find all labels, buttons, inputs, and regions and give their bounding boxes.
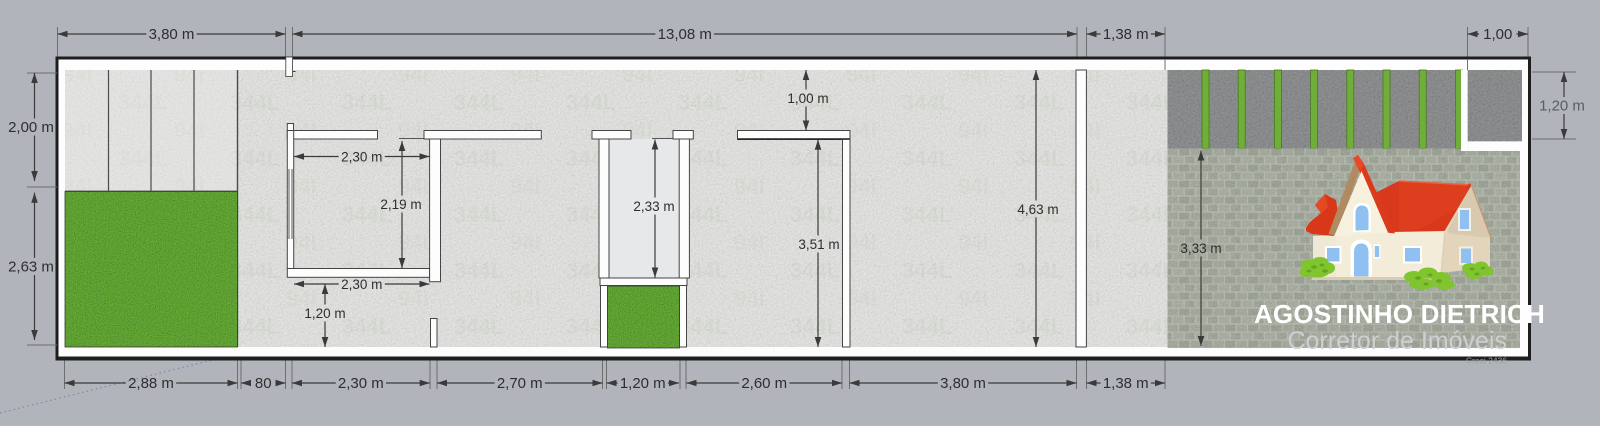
svg-text:1,20 m: 1,20 m	[620, 375, 666, 392]
svg-text:13,08 m: 13,08 m	[658, 26, 712, 43]
svg-text:3,51 m: 3,51 m	[798, 237, 839, 252]
svg-text:3,80 m: 3,80 m	[149, 26, 195, 43]
svg-text:2,70 m: 2,70 m	[497, 375, 543, 392]
svg-text:1,00 m: 1,00 m	[787, 91, 828, 106]
svg-text:1,00: 1,00	[1483, 26, 1512, 43]
svg-text:4,63 m: 4,63 m	[1017, 202, 1058, 217]
svg-text:3,80 m: 3,80 m	[940, 375, 986, 392]
svg-text:2,63 m: 2,63 m	[8, 258, 54, 275]
svg-text:2,30 m: 2,30 m	[338, 375, 384, 392]
svg-text:2,60 m: 2,60 m	[741, 375, 787, 392]
svg-text:2,30 m: 2,30 m	[341, 277, 382, 292]
svg-text:AGOSTINHO DIETRICH: AGOSTINHO DIETRICH	[1254, 299, 1545, 329]
svg-text:1,38 m: 1,38 m	[1103, 26, 1149, 43]
svg-text:1,20 m: 1,20 m	[304, 306, 345, 321]
svg-text:2,00 m: 2,00 m	[8, 119, 54, 136]
svg-text:2,88 m: 2,88 m	[128, 375, 174, 392]
svg-text:Creci 2436: Creci 2436	[1466, 356, 1507, 366]
svg-text:80: 80	[255, 375, 272, 392]
svg-text:1,38 m: 1,38 m	[1103, 375, 1149, 392]
svg-text:2,33 m: 2,33 m	[633, 199, 674, 214]
svg-text:Corretor de Imóveis: Corretor de Imóveis	[1287, 327, 1507, 355]
svg-text:2,19 m: 2,19 m	[380, 197, 421, 212]
svg-text:2,30 m: 2,30 m	[341, 150, 382, 165]
svg-text:3,33 m: 3,33 m	[1180, 241, 1221, 256]
svg-text:1,20 m: 1,20 m	[1539, 98, 1585, 115]
